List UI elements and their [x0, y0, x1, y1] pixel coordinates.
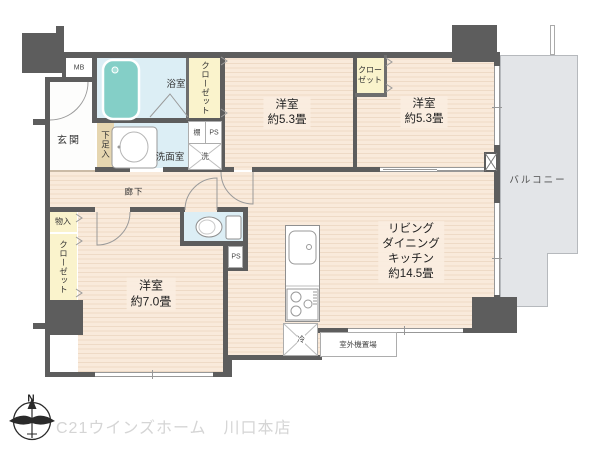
bedroom-a-door-arc: [221, 172, 253, 204]
closet-mid-line2: ゼット: [358, 76, 382, 85]
bedroom-c-door-arc: [97, 212, 130, 245]
label-shelf: 棚: [194, 128, 201, 137]
label-corridor: 廊下: [124, 186, 143, 197]
label-refrigerator: 冷: [297, 335, 305, 345]
shaft-x: [485, 153, 497, 171]
bedroom-b-size: 約5.3畳: [405, 113, 444, 125]
wash-basin-bowl: [120, 132, 148, 162]
label-closet-bath: クローゼット: [199, 61, 210, 115]
closet-mid-line1: クロー: [358, 66, 382, 75]
toilet-door-arc: [185, 178, 217, 210]
watermark-text: C21ウインズホーム 川口本店: [56, 414, 292, 438]
bedroom-c-size: 約7.0畳: [131, 294, 172, 308]
ldk-line1: リビング: [388, 223, 434, 235]
label-ps-lower: PS: [231, 252, 240, 261]
label-bathroom: 浴室: [166, 79, 185, 91]
label-shoe-box: 下足入: [99, 131, 110, 160]
label-outdoor-unit: 室外機置場: [339, 340, 377, 350]
label-washer: 洗: [201, 152, 209, 162]
label-bedroom-c: 洋室 約7.0畳: [127, 277, 176, 310]
ldk-line2: ダイニング: [382, 238, 440, 250]
label-washroom: 洗面室: [156, 152, 185, 164]
plan-linework: [0, 0, 600, 450]
bathtub-drain: [112, 67, 118, 73]
label-ps-upper: PS: [209, 128, 218, 137]
bedroom-a-name: 洋室: [276, 99, 299, 111]
label-storage: 物入: [55, 217, 71, 227]
label-balcony: バルコニー: [509, 175, 566, 187]
toilet-tank: [226, 216, 241, 239]
bathtub: [103, 60, 139, 119]
label-ldk: リビング ダイニング キッチン 約14.5畳: [378, 221, 444, 283]
bedroom-a-size: 約5.3畳: [268, 114, 307, 126]
ldk-line3: キッチン: [388, 253, 434, 265]
bedroom-c-name: 洋室: [139, 278, 163, 292]
bath-folding-door: [150, 94, 188, 117]
entrance-door-arc: [50, 82, 88, 120]
compass-north-label: N: [27, 394, 34, 405]
label-closet-mid: クロー ゼット: [358, 66, 382, 87]
floor-plan: 玄関 MB 浴室 洗面室 棚 PS 洗 下足入 クローゼット 洋室 約5.3畳 …: [0, 0, 600, 450]
bedroom-b-name: 洋室: [413, 98, 436, 110]
label-genkan: 玄関: [57, 135, 81, 148]
label-mb: MB: [74, 63, 85, 72]
wash-basin-faucet: [118, 146, 121, 149]
label-closet-west: クローゼット: [57, 240, 68, 294]
ldk-size: 約14.5畳: [388, 268, 433, 280]
label-bedroom-b: 洋室 約5.3畳: [401, 96, 448, 128]
label-bedroom-a: 洋室 約5.3畳: [264, 97, 311, 129]
